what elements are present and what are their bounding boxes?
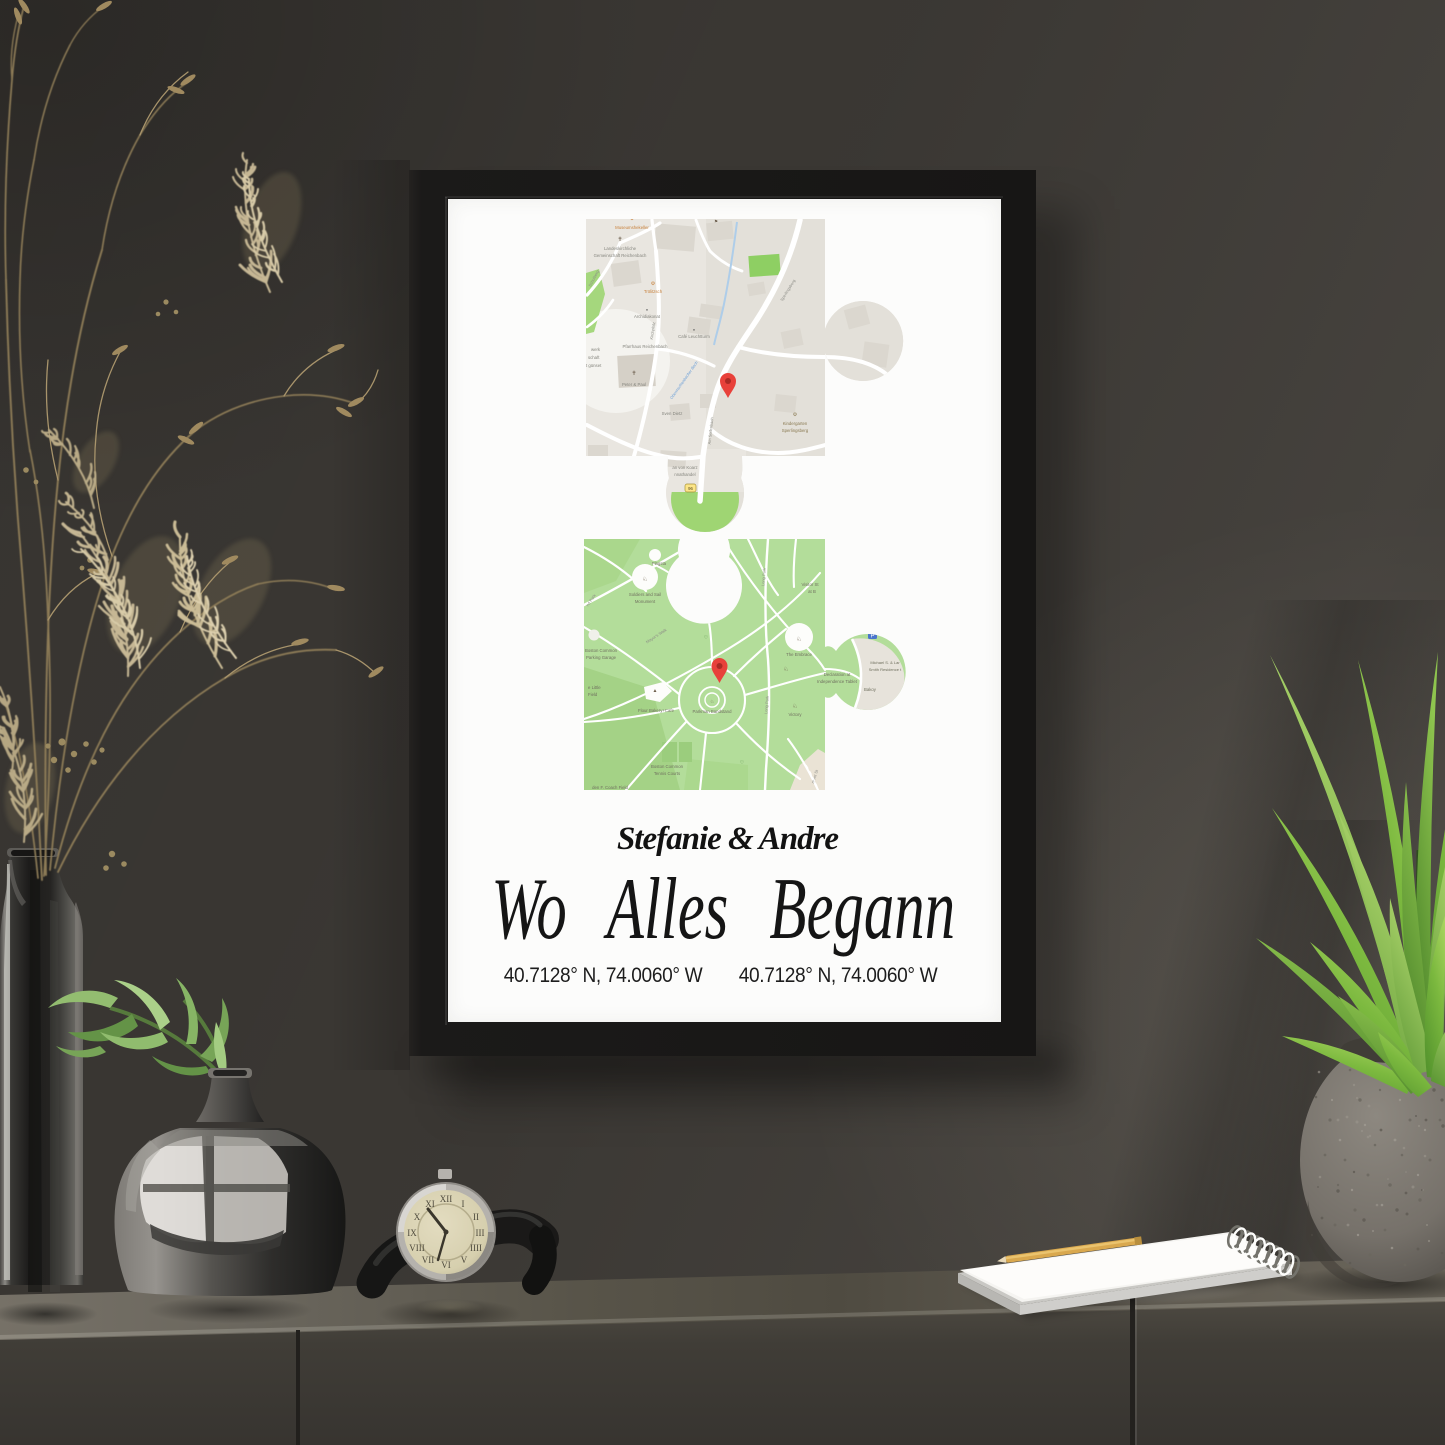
svg-text:VI: VI [441, 1260, 451, 1270]
svg-text:t günset: t günset [586, 363, 602, 368]
svg-text:Flagsta: Flagsta [652, 561, 667, 566]
svg-text:Tennis Courts: Tennis Courts [654, 771, 680, 776]
svg-text:Victory: Victory [788, 712, 802, 717]
svg-text:Gemeinschaft Reichenbach: Gemeinschaft Reichenbach [594, 253, 647, 258]
svg-text:e Little: e Little [588, 685, 601, 690]
svg-text:Flour Bakery+Cafe: Flour Bakery+Cafe [638, 708, 675, 713]
svg-text:Monument: Monument [635, 599, 656, 604]
svg-text:III: III [476, 1228, 485, 1238]
svg-text:Field: Field [588, 692, 598, 697]
svg-text:♘: ♘ [710, 699, 714, 704]
svg-text:Landeskirchliche: Landeskirchliche [604, 246, 637, 251]
svg-text:✝: ✝ [617, 236, 622, 243]
svg-text:⚙: ⚙ [793, 412, 798, 418]
svg-text:Sven Dietz: Sven Dietz [662, 411, 683, 416]
svg-text:♡: ♡ [740, 760, 745, 766]
svg-text:⚑: ⚑ [714, 219, 718, 224]
svg-text:▲: ▲ [653, 688, 658, 694]
svg-text:XII: XII [440, 1194, 453, 1204]
svg-text:Bakoy: Bakoy [864, 687, 877, 692]
svg-text:Archidiakonat: Archidiakonat [634, 314, 661, 319]
svg-text:IX: IX [407, 1228, 417, 1238]
svg-text:●: ● [693, 328, 695, 332]
svg-text:●: ● [646, 308, 648, 312]
svg-text:P: P [870, 634, 874, 640]
svg-text:Michael S. & Lar: Michael S. & Lar [870, 660, 900, 665]
svg-text:The Embrace: The Embrace [786, 652, 812, 657]
svg-text:werk: werk [591, 347, 601, 352]
svg-text:Trölitzsch: Trölitzsch [644, 289, 663, 294]
svg-text:96: 96 [688, 486, 693, 491]
svg-text:⚙: ⚙ [630, 216, 635, 222]
svg-text:II: II [473, 1212, 479, 1222]
svg-text:Boston Common: Boston Common [651, 764, 684, 769]
svg-text:Boston Common: Boston Common [585, 648, 618, 653]
svg-text:Kindergarten: Kindergarten [783, 421, 808, 426]
svg-text:♡: ♡ [704, 635, 709, 641]
svg-text:den F. Coach Field: den F. Coach Field [592, 785, 628, 790]
svg-text:schaft: schaft [588, 355, 600, 360]
svg-text:♘: ♘ [783, 666, 788, 673]
svg-text:an von Koarz: an von Koarz [672, 465, 697, 470]
svg-text:Soldiers and Sail: Soldiers and Sail [629, 592, 661, 597]
svg-text:Parkman Bandstand: Parkman Bandstand [693, 709, 733, 714]
svg-text:I: I [462, 1199, 465, 1209]
svg-text:VIII: VIII [409, 1243, 425, 1253]
svg-text:Smith Residence t: Smith Residence t [869, 667, 902, 672]
svg-text:Café Leuchtturm: Café Leuchtturm [678, 334, 710, 339]
svg-text:XI: XI [425, 1199, 435, 1209]
svg-text:♘: ♘ [792, 703, 797, 710]
svg-text:VII: VII [422, 1255, 435, 1265]
svg-text:Independence Tablet: Independence Tablet [817, 679, 858, 684]
svg-text:♘: ♘ [642, 576, 647, 583]
svg-text:nnathandel: nnathandel [674, 472, 695, 477]
svg-text:♘: ♘ [796, 636, 801, 643]
svg-text:Visitor St: Visitor St [801, 582, 819, 587]
svg-text:Museumshekeller: Museumshekeller [615, 225, 649, 230]
svg-text:Declaration at: Declaration at [824, 672, 851, 677]
svg-text:X: X [414, 1212, 421, 1222]
svg-text:⚙: ⚙ [651, 281, 656, 287]
svg-text:Pfarrhaus Reichenbach: Pfarrhaus Reichenbach [623, 344, 669, 349]
svg-text:Peter & Paul: Peter & Paul [622, 382, 646, 387]
svg-text:IIII: IIII [470, 1243, 482, 1253]
svg-text:at B: at B [808, 589, 816, 594]
svg-text:V: V [461, 1255, 468, 1265]
svg-text:Parking Garage: Parking Garage [586, 655, 617, 660]
svg-text:✝: ✝ [631, 370, 636, 377]
svg-text:Sperlingsberg: Sperlingsberg [782, 428, 809, 433]
